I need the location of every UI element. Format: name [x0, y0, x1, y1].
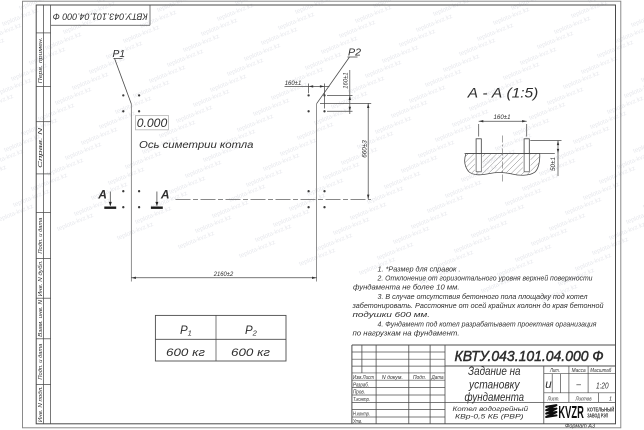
svg-text:0.000: 0.000: [137, 116, 168, 130]
svg-text:1. *Размер для справок .: 1. *Размер для справок .: [378, 265, 461, 273]
svg-text:Н.контр.: Н.контр.: [353, 412, 370, 418]
svg-text:600 кг: 600 кг: [231, 347, 271, 359]
svg-text:600 кг: 600 кг: [166, 347, 206, 359]
svg-text:Справ. N: Справ. N: [38, 128, 44, 168]
svg-text:Разраб.: Разраб.: [353, 382, 369, 388]
svg-text:–: –: [575, 380, 581, 389]
svg-text:КВТУ.043.101.04.000 Ф: КВТУ.043.101.04.000 Ф: [455, 348, 604, 365]
svg-text:Взам. инв. N: Взам. инв. N: [38, 300, 44, 337]
svg-text:Пров.: Пров.: [353, 390, 365, 396]
svg-text:Подп.: Подп.: [413, 375, 426, 381]
svg-text:Инв. N подл.: Инв. N подл.: [38, 386, 44, 422]
svg-text:Дата: Дата: [431, 375, 444, 381]
svg-text:и: и: [545, 379, 552, 391]
svg-text:КВТУ.043.101.04.000 Ф: КВТУ.043.101.04.000 Ф: [53, 12, 148, 22]
svg-text:фундамента: фундамента: [465, 390, 525, 404]
svg-text:ЗАВОД РЭП: ЗАВОД РЭП: [587, 413, 608, 419]
svg-text:А - А (1:5): А - А (1:5): [467, 85, 539, 100]
svg-text:Масса: Масса: [572, 368, 586, 374]
svg-text:Т.контр.: Т.контр.: [353, 397, 370, 403]
svg-text:Лит.: Лит.: [549, 368, 560, 374]
svg-text:Инв. N дубл.: Инв. N дубл.: [38, 260, 44, 296]
svg-text:Утв.: Утв.: [353, 419, 362, 425]
svg-text:1: 1: [609, 396, 612, 402]
svg-text:160±1: 160±1: [494, 114, 511, 121]
svg-text:Котел водогрейный: Котел водогрейный: [453, 405, 529, 413]
svg-text:Подп. и дата: Подп. и дата: [38, 344, 44, 380]
svg-text:подушки 600 мм.: подушки 600 мм.: [353, 311, 431, 319]
svg-text:Ось симетрии котла: Ось симетрии котла: [139, 140, 254, 151]
svg-text:Подп. и дата: Подп. и дата: [38, 218, 44, 254]
svg-text:КВр-0,5 КБ (РВР): КВр-0,5 КБ (РВР): [455, 414, 524, 421]
svg-text:50±1: 50±1: [550, 157, 557, 171]
svg-text:фундамента не более 10 мм.: фундамента не более 10 мм.: [353, 284, 460, 292]
svg-text:160±1: 160±1: [343, 72, 350, 89]
svg-text:забетонировать. Расстояние от: забетонировать. Расстояние от осей крайн…: [351, 302, 603, 310]
svg-text:А: А: [97, 188, 107, 202]
svg-text:Формат А3: Формат А3: [565, 424, 596, 430]
svg-text:по нагрузкам на фундамент.: по нагрузкам на фундамент.: [353, 330, 460, 338]
svg-text:KVZR: KVZR: [558, 402, 584, 422]
svg-text:А: А: [160, 188, 170, 202]
svg-text:160±1: 160±1: [285, 80, 302, 87]
svg-text:Задание на: Задание на: [468, 364, 521, 378]
svg-text:Изм.Лист: Изм.Лист: [353, 375, 375, 381]
svg-text:N докум.: N докум.: [382, 375, 403, 381]
svg-text:660±3: 660±3: [361, 140, 368, 158]
svg-text:Перв. примен.: Перв. примен.: [38, 37, 44, 83]
svg-text:4. Фундамент под котел разраба: 4. Фундамент под котел разрабатывает про…: [378, 320, 597, 328]
svg-text:2. Отклонение от горизонтально: 2. Отклонение от горизонтального уровня …: [377, 275, 593, 283]
svg-text:1:20: 1:20: [596, 381, 609, 390]
svg-text:3. В случае отсутствия бетонно: 3. В случае отсутствия бетонного пола пл…: [378, 293, 588, 301]
svg-text:Масштаб: Масштаб: [590, 368, 612, 374]
svg-text:2160±2: 2160±2: [213, 271, 234, 278]
